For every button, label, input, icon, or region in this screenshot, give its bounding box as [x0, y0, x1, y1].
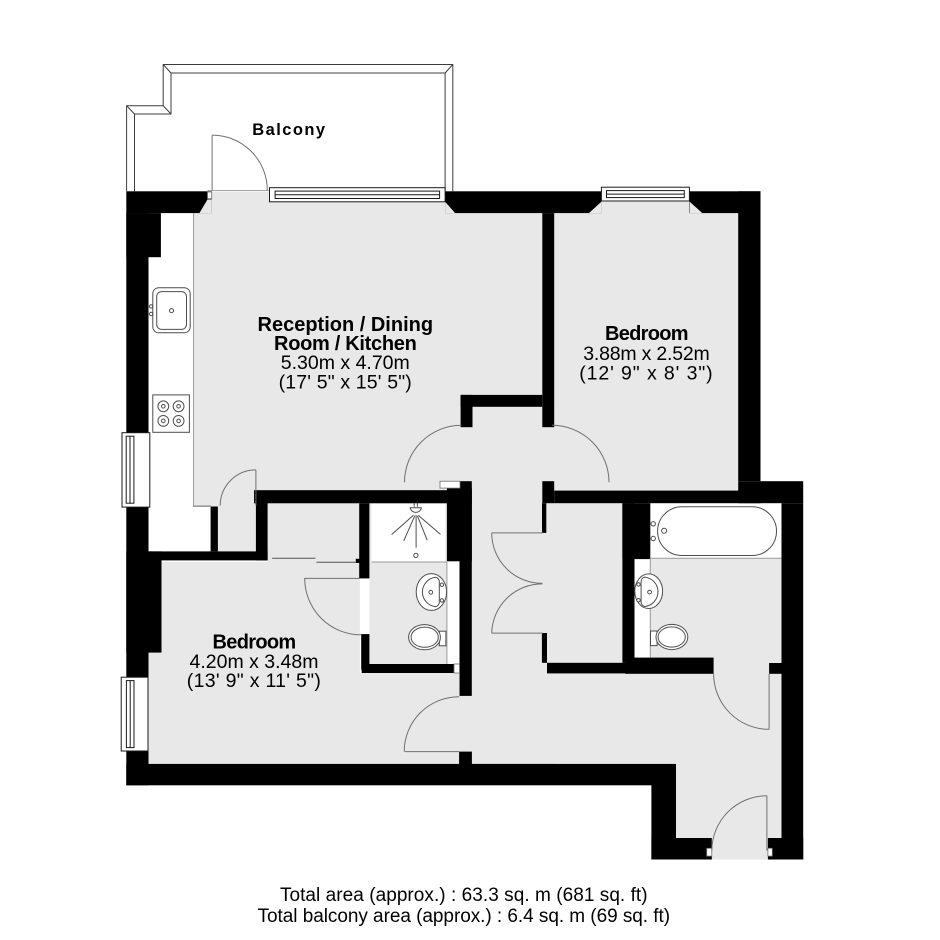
svg-text:Bedroom: Bedroom [605, 323, 688, 345]
svg-text:(17' 5" x 15' 5"): (17' 5" x 15' 5") [279, 371, 412, 393]
svg-text:(12' 9" x 8' 3"): (12' 9" x 8' 3") [579, 362, 713, 384]
svg-text:Balcony: Balcony [252, 121, 326, 139]
svg-text:(13' 9" x 11' 5"): (13' 9" x 11' 5") [187, 670, 321, 692]
svg-text:Total balcony area (approx.) :: Total balcony area (approx.) : 6.4 sq. m… [258, 906, 670, 927]
svg-text:Total area (approx.) : 63.3 sq: Total area (approx.) : 63.3 sq. m (681 s… [280, 885, 648, 906]
